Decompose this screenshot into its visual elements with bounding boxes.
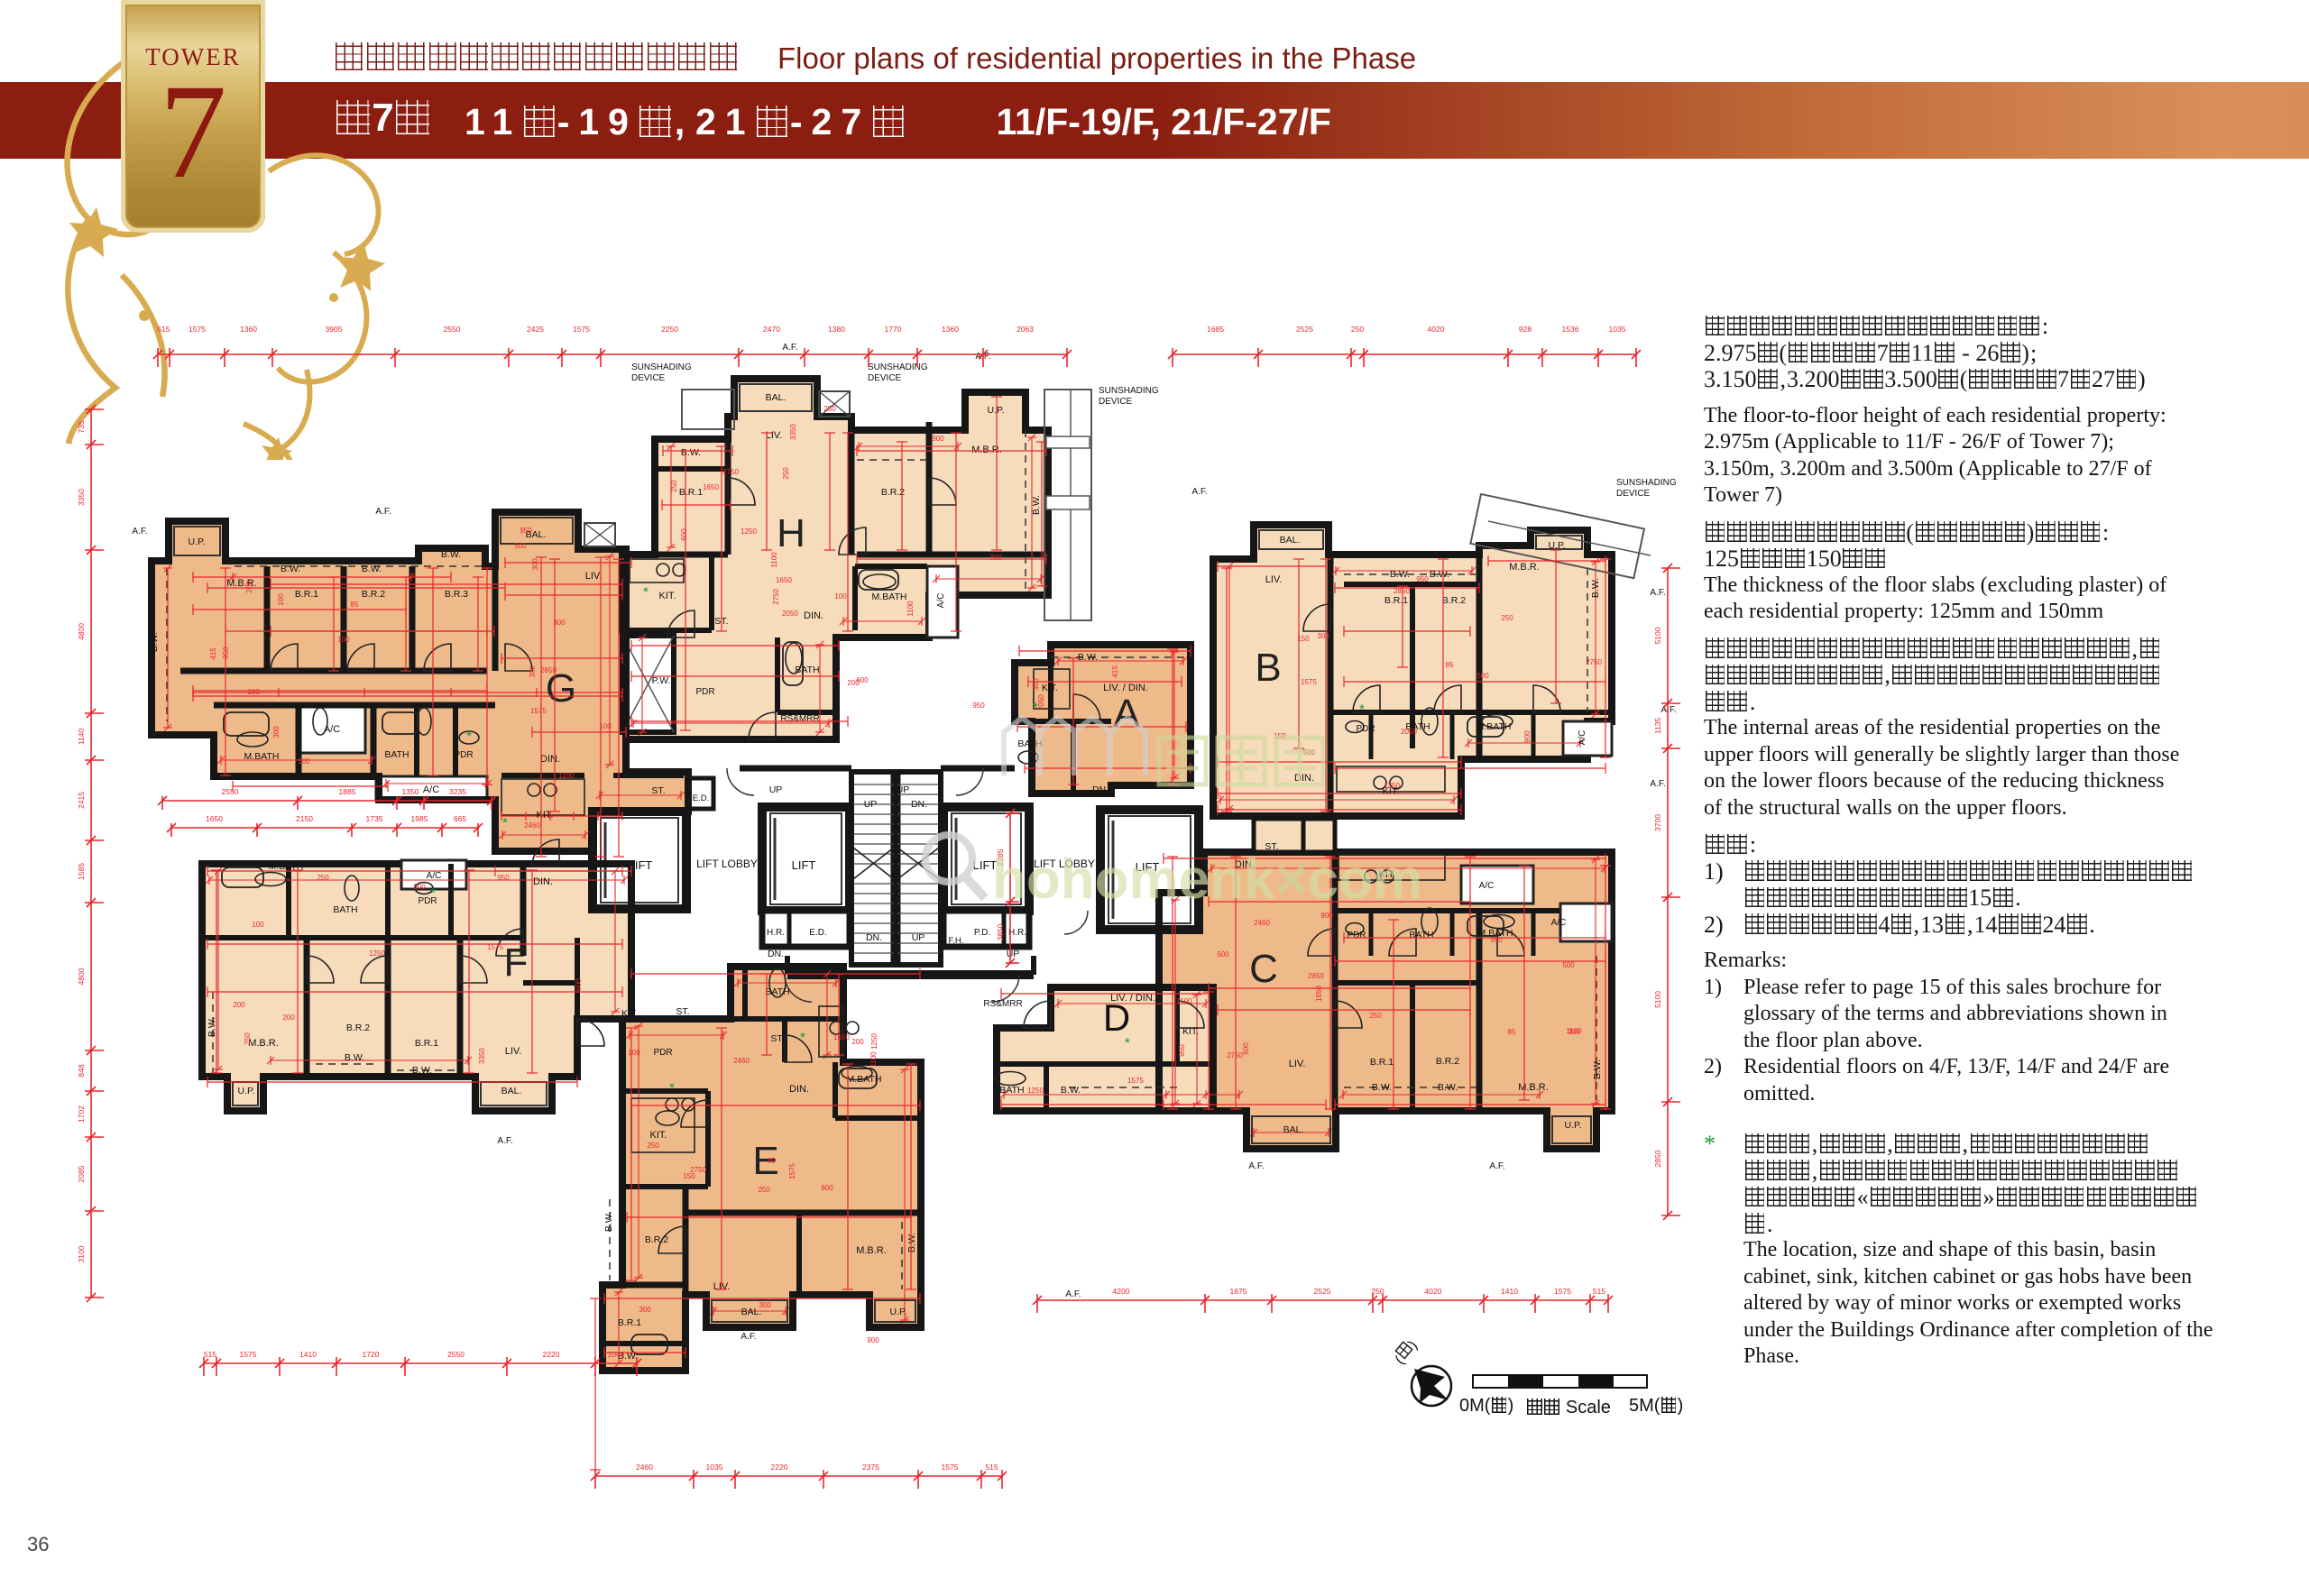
svg-text:2850: 2850 [1394,587,1410,595]
svg-text:150: 150 [1297,635,1310,643]
svg-text:950: 950 [1178,1044,1186,1057]
svg-text:M.BATH: M.BATH [847,1074,882,1085]
svg-text:DEVICE: DEVICE [1616,489,1651,499]
svg-text:hohomenk×com: hohomenk×com [992,848,1422,911]
svg-text:BATH: BATH [795,665,819,675]
svg-text:D: D [1103,996,1130,1039]
svg-text:KIT.: KIT. [1182,1026,1199,1037]
svg-text:2550: 2550 [447,1350,465,1359]
svg-text:950: 950 [497,874,510,882]
svg-text:1410: 1410 [1501,1287,1518,1296]
svg-text:M.B.R.: M.B.R. [248,1038,279,1049]
svg-text:300: 300 [759,1301,771,1309]
svg-text:950: 950 [972,702,985,710]
svg-text:2150: 2150 [296,814,313,823]
svg-text:PDR: PDR [1356,724,1375,734]
svg-text:B.R.3: B.R.3 [445,589,468,600]
svg-text:ST.: ST. [770,1033,784,1044]
svg-text:250: 250 [1351,325,1364,334]
svg-text:DIN.: DIN. [789,1084,809,1095]
svg-text:1685: 1685 [1207,325,1224,334]
svg-text:2460: 2460 [1254,919,1270,927]
svg-text:85: 85 [351,601,359,609]
svg-text:900: 900 [413,883,426,891]
svg-text:LIFT LOBBY: LIFT LOBBY [696,858,758,870]
svg-text:928: 928 [1519,325,1532,334]
svg-text:250: 250 [670,480,678,492]
svg-text:1035: 1035 [1609,325,1626,334]
svg-text:1360: 1360 [942,325,959,334]
svg-text:*: * [466,729,472,745]
svg-text:1575: 1575 [487,943,503,951]
svg-text:250: 250 [317,874,329,882]
svg-text:950: 950 [222,647,230,659]
svg-text:*: * [669,1081,675,1096]
svg-text:(: ( [1393,1353,1408,1368]
svg-text:E.D.: E.D. [693,793,709,803]
svg-text:BATH: BATH [384,749,409,760]
svg-text:M.BATH: M.BATH [1476,721,1512,732]
svg-text:950: 950 [1416,575,1429,583]
svg-text:SUNSHADING: SUNSHADING [868,362,928,372]
svg-text:B.W.: B.W. [906,1233,917,1252]
svg-text:U.P.: U.P. [1564,1120,1581,1131]
svg-text:P.W.: P.W. [652,675,671,686]
svg-text:B.R.1: B.R.1 [1370,1057,1394,1068]
svg-text:A/C: A/C [1578,730,1587,746]
svg-text:U.P.: U.P. [889,1307,906,1317]
svg-text:A/C: A/C [936,593,946,609]
svg-text:B.W.: B.W. [149,632,160,652]
svg-text:1720: 1720 [363,1350,380,1359]
svg-text:1650: 1650 [776,576,792,584]
svg-text:RS&MRR: RS&MRR [983,999,1022,1009]
svg-text:B.W.: B.W. [1061,1085,1081,1096]
svg-text:150: 150 [683,1172,695,1180]
svg-text:3850: 3850 [996,923,1005,940]
svg-text:A/C: A/C [423,784,439,795]
svg-text:1250: 1250 [1384,782,1400,790]
svg-text:1735: 1735 [366,814,383,823]
svg-text:U.P.: U.P. [188,537,205,547]
svg-text:4800: 4800 [77,968,86,985]
svg-text:1100: 1100 [1176,997,1192,1005]
svg-text:250: 250 [244,1032,252,1045]
svg-text:1702: 1702 [77,1105,86,1123]
svg-text:B.W.: B.W. [1592,1059,1603,1079]
svg-text:2470: 2470 [763,325,780,334]
svg-text:2525: 2525 [1314,1287,1331,1296]
svg-text:B.W.: B.W. [1031,495,1042,515]
svg-text:B.R.1: B.R.1 [679,487,703,498]
svg-text:A.F.: A.F. [375,507,391,517]
svg-text:BAL.: BAL. [1283,1124,1304,1135]
svg-text:DEVICE: DEVICE [1099,397,1133,407]
svg-text:3350: 3350 [478,1048,486,1064]
svg-text:RS&MRR: RS&MRR [780,714,819,724]
svg-text:KIT.: KIT. [621,1008,638,1019]
svg-text:250: 250 [1369,1012,1382,1020]
svg-text:2750: 2750 [1586,658,1602,666]
svg-text:1250: 1250 [741,527,757,536]
svg-text:515: 515 [1593,1287,1605,1296]
svg-text:1140: 1140 [77,729,86,746]
svg-text:LIV.: LIV. [505,1046,522,1057]
svg-text:PDR: PDR [1347,931,1366,940]
svg-text:BAL.: BAL. [501,1086,522,1096]
svg-text:500: 500 [1562,961,1575,969]
svg-text:KIT.: KIT. [659,591,676,601]
svg-text:PDR: PDR [653,1048,672,1058]
svg-text:B.W.: B.W. [345,1052,364,1063]
svg-text:PDR: PDR [454,750,473,760]
svg-text:B.W.: B.W. [412,1065,432,1076]
svg-text:900: 900 [1523,730,1532,743]
svg-text:1536: 1536 [1562,325,1579,334]
svg-text:848: 848 [77,1064,86,1077]
svg-text:B.R.2: B.R.2 [362,589,385,600]
svg-text:KIT.: KIT. [1042,683,1058,693]
svg-text:A.F.: A.F. [741,1332,756,1342]
svg-text:100: 100 [298,757,310,766]
svg-text:2220: 2220 [543,1350,560,1359]
svg-text:100: 100 [628,1049,640,1057]
svg-text:665: 665 [454,814,466,823]
svg-text:A.F.: A.F. [782,343,797,353]
svg-text:M.B.R.: M.B.R. [856,1245,887,1256]
svg-text:1575: 1575 [189,325,206,334]
svg-text:415: 415 [209,647,217,660]
svg-text:1100: 1100 [906,601,915,617]
svg-text:1575: 1575 [530,707,547,715]
svg-text:A.F.: A.F. [1489,1161,1504,1171]
svg-text:1410: 1410 [299,1350,317,1359]
svg-text:DN.: DN. [768,949,784,959]
svg-text:1650: 1650 [833,1033,850,1041]
svg-text:250: 250 [823,405,836,413]
svg-text:A/C: A/C [427,871,442,881]
svg-text:1675: 1675 [1230,1287,1247,1296]
svg-text:1100: 1100 [869,1051,878,1068]
svg-text:B.W.: B.W. [681,447,701,458]
svg-text:B.R.1: B.R.1 [618,1317,641,1328]
svg-text:B.W.: B.W. [1390,569,1410,580]
svg-text:DIN.: DIN. [804,610,823,621]
svg-text:DEVICE: DEVICE [631,373,666,383]
svg-text:735: 735 [77,420,86,433]
svg-text:E.D.: E.D. [809,928,826,938]
svg-text:85: 85 [1446,661,1454,669]
svg-text:2850: 2850 [540,666,557,674]
svg-text:2220: 2220 [771,1463,788,1472]
svg-text:2415: 2415 [77,792,86,809]
svg-text:U.P.: U.P. [1548,540,1565,551]
svg-text:B.W.: B.W. [1438,1082,1458,1093]
svg-text:1650: 1650 [1315,986,1323,1002]
svg-text:1770: 1770 [885,325,902,334]
svg-text:250: 250 [1501,614,1513,622]
svg-text:100: 100 [277,593,285,606]
svg-text:200: 200 [282,1014,295,1022]
svg-text:A.F.: A.F. [533,509,548,518]
svg-text:200: 200 [233,1001,245,1009]
svg-text:300: 300 [1568,1028,1580,1036]
svg-text:1650: 1650 [703,483,719,491]
svg-text:A.F.: A.F. [1660,705,1676,715]
svg-text:100: 100 [252,921,264,929]
svg-text:2525: 2525 [1296,325,1313,334]
svg-text:B.W.: B.W. [1078,652,1098,663]
svg-text:1585: 1585 [77,863,86,880]
svg-text:2425: 2425 [527,325,544,334]
svg-text:M.B.R.: M.B.R. [1509,562,1540,573]
svg-text:250: 250 [758,1186,770,1194]
svg-text:C: C [1249,947,1278,991]
svg-text:3350: 3350 [789,424,797,440]
svg-text:515: 515 [985,1463,998,1472]
svg-text:85: 85 [768,1157,776,1165]
svg-text:KIT.: KIT. [650,1130,667,1141]
svg-text:600: 600 [680,528,688,541]
svg-text:1035: 1035 [706,1463,723,1472]
svg-text:A.F.: A.F. [132,527,147,537]
svg-text:M.B.R.: M.B.R. [971,445,1002,455]
svg-text:1575: 1575 [942,1463,959,1472]
svg-text:515: 515 [157,325,170,334]
svg-text:2460: 2460 [636,1463,653,1472]
svg-text:B.R.2: B.R.2 [1436,1056,1459,1067]
svg-text:BAL.: BAL. [766,392,787,403]
svg-text:950: 950 [1490,936,1503,944]
svg-text:1575: 1575 [788,1163,796,1179]
svg-text:300: 300 [989,554,1002,562]
svg-text:P.D.: P.D. [974,928,990,938]
svg-text:SUNSHADING: SUNSHADING [631,362,692,372]
svg-text:F.H.: F.H. [949,936,964,946]
svg-text:B.W.: B.W. [1590,578,1601,598]
svg-text:A.F.: A.F. [1650,779,1665,789]
svg-text:1046: 1046 [608,1350,625,1359]
svg-text:1360: 1360 [240,325,257,334]
svg-text:U.P.: U.P. [237,1086,254,1096]
svg-text:2250: 2250 [661,325,678,334]
svg-text:DIN.: DIN. [533,876,553,887]
svg-text:600: 600 [1242,1042,1250,1055]
svg-text:ST.: ST. [651,785,665,796]
svg-text:3100: 3100 [77,1245,86,1262]
svg-text:1250: 1250 [369,949,385,958]
svg-text:A.F.: A.F. [1650,588,1665,598]
svg-text:2460: 2460 [733,1057,750,1065]
svg-text:515: 515 [204,1350,216,1359]
svg-text:900: 900 [1320,912,1333,920]
svg-text:U.P.: U.P. [987,405,1004,416]
svg-text:A/C: A/C [1551,918,1567,928]
svg-text:B.W.: B.W. [1430,569,1449,580]
svg-text:*: * [430,886,436,902]
svg-text:UP: UP [1007,949,1020,959]
svg-text:1650: 1650 [206,814,223,823]
svg-text:B.R.2: B.R.2 [346,1023,370,1033]
svg-text:B.R.1: B.R.1 [1384,595,1408,606]
svg-text:B.R.2: B.R.2 [881,487,905,498]
svg-text:DEVICE: DEVICE [868,373,902,383]
svg-text:4800: 4800 [77,623,86,640]
svg-text:1135: 1135 [1653,718,1662,735]
svg-text:F: F [504,940,529,985]
svg-text:2850: 2850 [1308,972,1324,980]
svg-text:950: 950 [520,527,532,535]
svg-text:2750: 2750 [722,468,739,476]
svg-text:1380: 1380 [828,325,845,334]
svg-text:LIV.: LIV. [1289,1059,1306,1069]
svg-text:M.BATH: M.BATH [244,751,280,762]
svg-text:A.F.: A.F. [1191,487,1207,497]
svg-text:BATH: BATH [333,904,357,915]
svg-text:*: * [502,816,508,831]
svg-text:200: 200 [245,581,253,593]
svg-text:2085: 2085 [77,1165,86,1182]
svg-text:3235: 3235 [449,787,466,796]
svg-text:LIFT: LIFT [792,858,816,872]
svg-text:100: 100 [599,722,612,730]
svg-text:100: 100 [247,688,260,696]
svg-text:A.F.: A.F. [497,1136,512,1146]
svg-text:1350: 1350 [402,787,419,796]
svg-text:SUNSHADING: SUNSHADING [1616,478,1677,488]
svg-text:2050: 2050 [1401,728,1417,736]
svg-text:5100: 5100 [1653,991,1662,1008]
svg-text:A/C: A/C [1479,881,1495,891]
svg-text:B.R.1: B.R.1 [415,1038,438,1049]
svg-text:900: 900 [932,435,944,443]
svg-text:3700: 3700 [1653,814,1662,831]
svg-text:1575: 1575 [573,325,590,334]
svg-text:1575: 1575 [240,1350,257,1359]
svg-text:UP: UP [912,932,925,943]
svg-text:1575: 1575 [1554,1287,1571,1296]
svg-text:2050: 2050 [782,610,798,618]
svg-text:3350: 3350 [77,489,86,506]
svg-text:85: 85 [1508,1028,1516,1036]
svg-text:DN.: DN. [911,799,927,810]
svg-text:900: 900 [867,1336,879,1344]
svg-text:500: 500 [1476,672,1489,680]
svg-text:2550: 2550 [444,325,461,334]
svg-text:B: B [1255,646,1281,690]
svg-text:1575: 1575 [1127,1077,1144,1085]
svg-text:A.F.: A.F. [1065,1289,1081,1299]
svg-text:600: 600 [821,1184,833,1192]
svg-text:B.W.: B.W. [603,1212,614,1232]
svg-text:ST.: ST. [676,1006,689,1017]
svg-text:200: 200 [847,679,860,687]
svg-text:300: 300 [639,1306,651,1314]
svg-text:500: 500 [1217,950,1229,959]
svg-text:DIN.: DIN. [540,754,560,765]
svg-text:200: 200 [851,1038,864,1046]
svg-text:A.F.: A.F. [1248,1161,1264,1171]
svg-text:2550: 2550 [222,787,239,796]
svg-text:300: 300 [553,619,566,627]
svg-text:B.W.: B.W. [441,549,461,560]
svg-text:UP: UP [769,784,783,795]
svg-text:600: 600 [575,978,583,991]
svg-text:*: * [1033,701,1038,716]
svg-text:PDR: PDR [695,687,714,697]
svg-text:250: 250 [1371,1287,1384,1296]
svg-text:1250: 1250 [870,1033,879,1050]
svg-text:4200: 4200 [1113,1287,1130,1296]
svg-text:1985: 1985 [411,814,428,823]
svg-text:H: H [777,511,805,555]
svg-text:1250: 1250 [1027,1087,1044,1095]
svg-text:300: 300 [529,665,537,678]
svg-text:B.W.: B.W. [207,1017,217,1037]
svg-text:250: 250 [647,1142,659,1150]
svg-text:*: * [1125,1036,1130,1051]
svg-text:B.W.: B.W. [362,564,382,574]
svg-text:B.R.2: B.R.2 [1442,595,1466,606]
svg-text:100: 100 [834,592,847,601]
svg-text:B.R.2: B.R.2 [645,1234,668,1245]
svg-text:B.W.: B.W. [281,564,300,574]
svg-text:300: 300 [1032,678,1040,691]
svg-text:415: 415 [1111,665,1119,678]
svg-text:2750: 2750 [1227,1051,1243,1059]
svg-text:*: * [643,585,649,601]
svg-text:LIV.: LIV. [1265,574,1283,585]
svg-text:2460: 2460 [524,821,540,830]
svg-text:B.W.: B.W. [1372,1082,1392,1093]
svg-text:*: * [1359,702,1365,718]
svg-text:2063: 2063 [1017,325,1034,334]
svg-text:DN.: DN. [866,932,882,943]
svg-text:UP: UP [864,799,878,810]
svg-text:4020: 4020 [1428,325,1445,334]
svg-text:100: 100 [337,636,350,644]
svg-text:1100: 1100 [558,772,575,780]
svg-text:2850: 2850 [1653,1150,1662,1167]
svg-text:1100: 1100 [770,552,778,568]
svg-text:BATH: BATH [765,986,789,997]
svg-text:1885: 1885 [339,787,356,796]
svg-text:300: 300 [1317,632,1329,640]
svg-text:4020: 4020 [1425,1287,1442,1296]
svg-text:M.B.R.: M.B.R. [1518,1082,1549,1093]
svg-text:300: 300 [531,558,539,571]
svg-text:): ) [1406,1338,1421,1352]
svg-text:300: 300 [272,726,281,738]
svg-text:LIV.: LIV. [766,430,783,441]
svg-text:UP: UP [897,784,910,795]
svg-text:250: 250 [782,467,790,480]
svg-text:DIN.: DIN. [1294,773,1314,784]
svg-text:2050: 2050 [1037,694,1045,711]
svg-text:5100: 5100 [1653,627,1662,644]
svg-text:H.R.: H.R. [767,928,785,938]
svg-text:SUNSHADING: SUNSHADING [1099,386,1159,396]
svg-text:1575: 1575 [1301,678,1317,686]
svg-text:*: * [800,1031,805,1046]
svg-text:2375: 2375 [862,1463,879,1472]
svg-text:500: 500 [514,542,527,550]
svg-text:3905: 3905 [326,325,343,334]
svg-text:H.R.: H.R. [1008,928,1026,938]
svg-text:BATH: BATH [999,1085,1024,1096]
svg-text:BATH: BATH [1409,930,1433,940]
svg-text:2750: 2750 [772,589,780,605]
